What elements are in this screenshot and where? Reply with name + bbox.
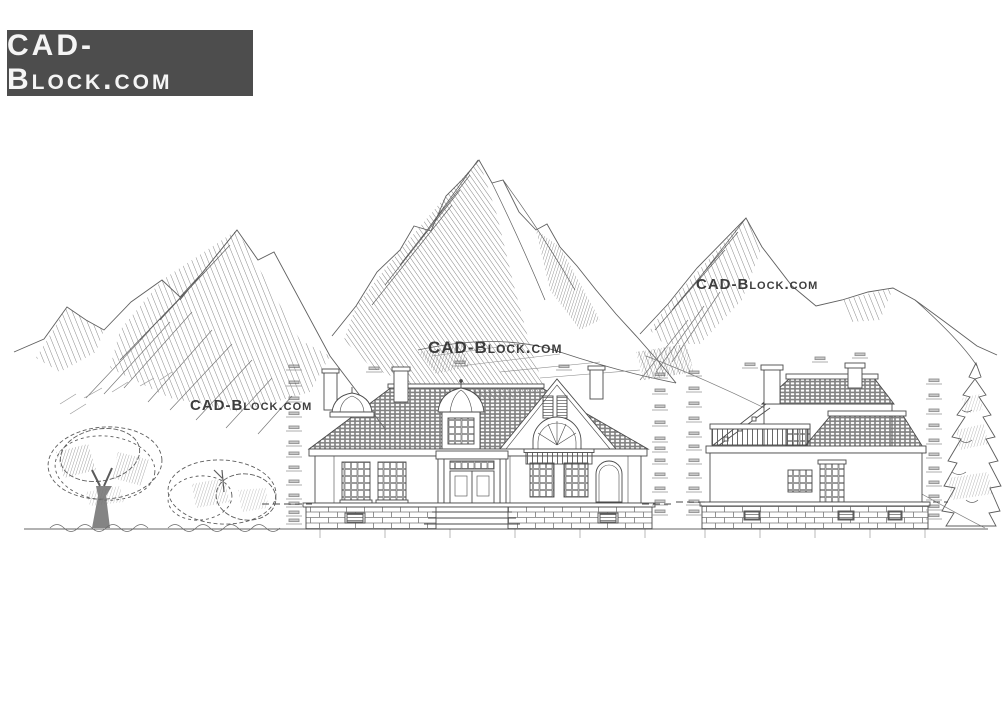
entrance-steps [424,507,520,529]
mountain-peak-center [332,160,676,402]
conifer-tree [942,363,1001,526]
roof [762,378,894,404]
watermark: CAD-Block.com [190,397,312,414]
cad-drawing-canvas: CAD-Block.com CAD-Block.com CAD-Block.co… [0,0,1005,707]
front-door [436,451,508,503]
logo-text: CAD-Block.com [7,29,253,97]
balcony-balustrade [524,449,594,464]
watermark: CAD-Block.com [696,276,818,293]
deciduous-tree [46,422,165,531]
logo-banner: CAD-Block.com [7,30,253,96]
brick-plinth [700,502,930,529]
terrace-railing [710,424,810,445]
house-side-elevation [676,353,948,529]
watermark: CAD-Block.com [428,338,562,358]
house-front-elevation [262,361,674,529]
bush [166,457,280,531]
wall [710,453,922,502]
ground-line [24,529,988,538]
trees-left [46,422,280,531]
